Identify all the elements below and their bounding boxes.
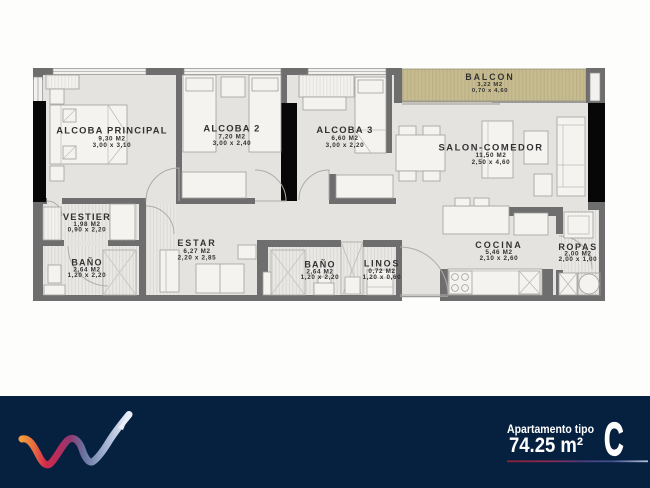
svg-text:2,00 x 1,00: 2,00 x 1,00 [559, 256, 598, 263]
svg-text:0,90 x 2,20: 0,90 x 2,20 [68, 227, 107, 234]
svg-text:SALON-COMEDOR: SALON-COMEDOR [438, 141, 543, 152]
svg-text:1,20 x 0,60: 1,20 x 0,60 [363, 274, 402, 281]
svg-text:ALCOBA 3: ALCOBA 3 [316, 124, 373, 135]
svg-text:3,00 x 3,10: 3,00 x 3,10 [93, 142, 132, 149]
svg-text:ESTAR: ESTAR [177, 238, 216, 248]
svg-text:1,20 x 2,20: 1,20 x 2,20 [68, 272, 107, 279]
svg-text:2,20 x 2,85: 2,20 x 2,85 [178, 254, 217, 261]
svg-text:74.25 m²: 74.25 m² [509, 434, 583, 457]
svg-text:ALCOBA PRINCIPAL: ALCOBA PRINCIPAL [56, 125, 167, 136]
svg-text:ALCOBA 2: ALCOBA 2 [203, 123, 260, 134]
svg-text:3,00 x 2,40: 3,00 x 2,40 [213, 140, 252, 147]
svg-text:C: C [604, 415, 624, 466]
svg-text:6,60 M2: 6,60 M2 [331, 135, 358, 142]
svg-text:2,10 x 2,60: 2,10 x 2,60 [480, 255, 519, 262]
svg-text:BALCON: BALCON [465, 72, 514, 82]
svg-text:2,50 x 4,60: 2,50 x 4,60 [472, 159, 511, 166]
svg-text:1,20 x 2,20: 1,20 x 2,20 [301, 274, 340, 281]
svg-text:0,70 x 4,60: 0,70 x 4,60 [472, 88, 508, 94]
svg-text:3,00 x 2,20: 3,00 x 2,20 [326, 142, 365, 149]
